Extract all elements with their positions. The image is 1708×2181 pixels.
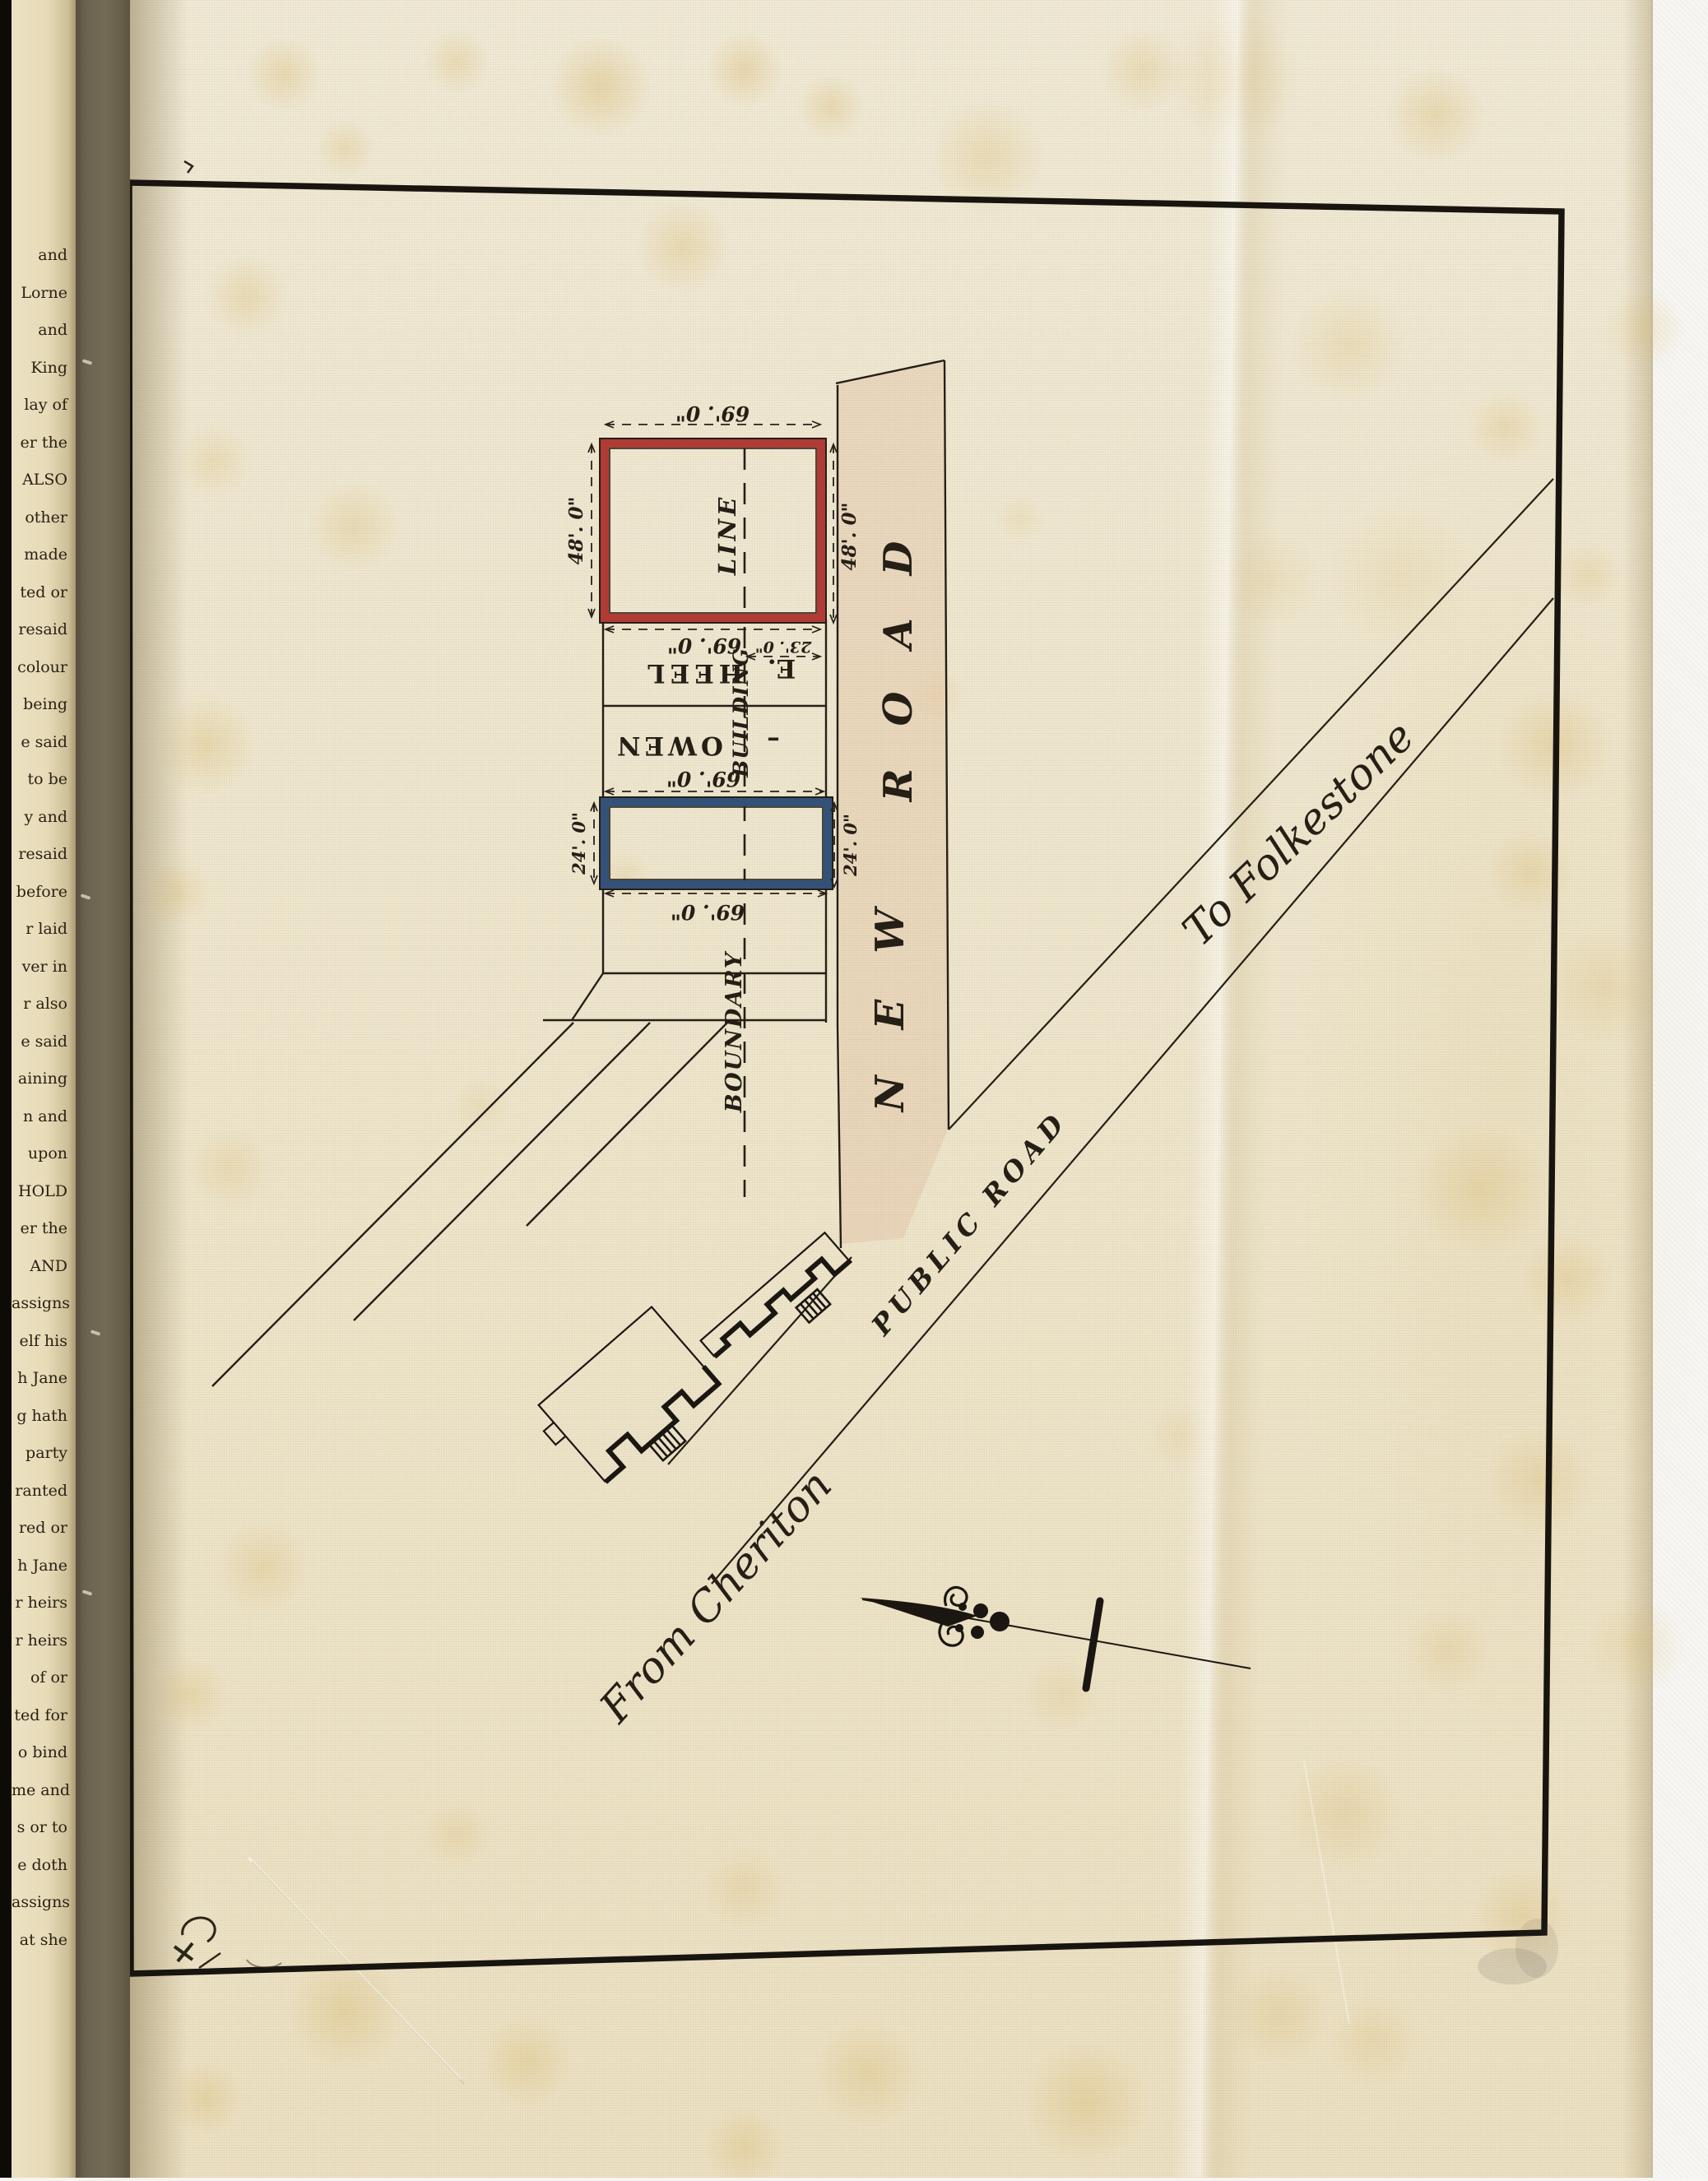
deed-text-fragment: assigns [12, 1285, 67, 1323]
deed-text-fragment: resaid [12, 611, 67, 649]
binding-stitch [82, 1589, 93, 1596]
deed-text-fragment: before [12, 874, 67, 912]
deed-text-fragment: made [12, 536, 67, 574]
label-line: LINE [713, 494, 741, 577]
deed-text-fragment: er the [12, 425, 67, 462]
deed-text-fragment: er the [12, 1210, 67, 1248]
label-building: BUILDING [729, 647, 753, 778]
deed-text-fragment: Lorne [12, 275, 67, 313]
deed-text-fragment: r also [12, 986, 67, 1023]
deed-text-fragment: e said [12, 724, 67, 762]
deed-text-fragment: elf his [12, 1323, 67, 1361]
deed-text-fragment: h Jane [12, 1360, 67, 1398]
deed-text-fragment: r heirs [12, 1622, 67, 1660]
deed-text-fragment: HOLD [12, 1173, 67, 1211]
scanned-deed-plan-page: 69'. 0" 69'. 0" 23'. 0" 69'. 0" 69'. 0" … [0, 0, 1708, 2178]
plan-sheet: 69'. 0" 69'. 0" 23'. 0" 69'. 0" 69'. 0" … [0, 0, 1708, 2178]
deed-text-fragment: o bind [12, 1734, 67, 1772]
binding-stitch [91, 1329, 101, 1336]
deed-text-fragment: n and [12, 1098, 67, 1136]
dim-24-left: 24'. 0" [569, 812, 589, 875]
gutter-shadow [130, 0, 188, 2178]
deed-text-fragment: me and [12, 1772, 67, 1810]
label-owen: OWEN [613, 731, 723, 760]
book-gutter-shadow [0, 0, 12, 2178]
dim-23: 23'. 0" [755, 638, 813, 656]
deed-text-fragment: King [12, 350, 67, 387]
deed-text-fragment: assigns [12, 1884, 67, 1922]
deed-text-fragment: colour [12, 649, 67, 687]
deed-text-fragments: andLorneandKinglay ofer theALSOothermade… [12, 237, 71, 1959]
deed-text-fragment: lay of [12, 387, 67, 425]
label-e-initial: E. [768, 653, 796, 683]
binding-stitch [81, 893, 91, 900]
binding-stitch [82, 359, 93, 365]
binding-cloth [76, 0, 130, 2178]
label-heel: HEEL [643, 658, 743, 688]
label-boundary: BOUNDARY [722, 950, 747, 1113]
dim-24-right: 24'. 0" [840, 814, 861, 877]
deed-text-fragment: r laid [12, 911, 67, 949]
deed-text-fragment: r heirs [12, 1585, 67, 1622]
dim-48-left: 48'. 0" [565, 496, 587, 564]
deed-text-fragment: being [12, 686, 67, 724]
deed-text-fragment: ranted [12, 1473, 67, 1510]
dim-69-below-blue: 69'. 0" [671, 900, 745, 924]
new-road-name-road: ROAD [875, 499, 921, 804]
deed-text-fragment: and [12, 312, 67, 350]
deed-text-fragment: e said [12, 1023, 67, 1061]
deed-text-fragment: ted for [12, 1697, 67, 1735]
deed-text-fragment: AND [12, 1248, 67, 1286]
deed-text-fragment: ted or [12, 574, 67, 612]
deed-text-fragment: red or [12, 1510, 67, 1548]
label-dash: – [767, 726, 780, 755]
dim-69-top: 69'. 0" [675, 401, 750, 425]
deed-text-fragment: y and [12, 799, 67, 837]
dim-48-right: 48'. 0" [838, 502, 861, 570]
deed-text-fragment: e doth [12, 1847, 67, 1885]
deed-text-fragment: other [12, 499, 67, 537]
deed-text-fragment: party [12, 1435, 67, 1473]
deed-text-fragment: ALSO [12, 462, 67, 499]
deed-text-fragment: at she [12, 1922, 67, 1960]
deed-text-fragment: and [12, 237, 67, 275]
deed-text-fragment: h Jane [12, 1548, 67, 1585]
new-road-name-new: NEW [867, 863, 913, 1113]
deed-text-fragment: g hath [12, 1398, 67, 1436]
deed-text-fragment: upon [12, 1135, 67, 1173]
deed-text-fragment: of or [12, 1659, 67, 1697]
deed-text-fragment: aining [12, 1060, 67, 1098]
deed-text-fragment: resaid [12, 836, 67, 874]
deed-text-fragment: to be [12, 761, 67, 799]
deed-text-fragment: s or to [12, 1809, 67, 1847]
deed-text-fragment: ver in [12, 949, 67, 986]
